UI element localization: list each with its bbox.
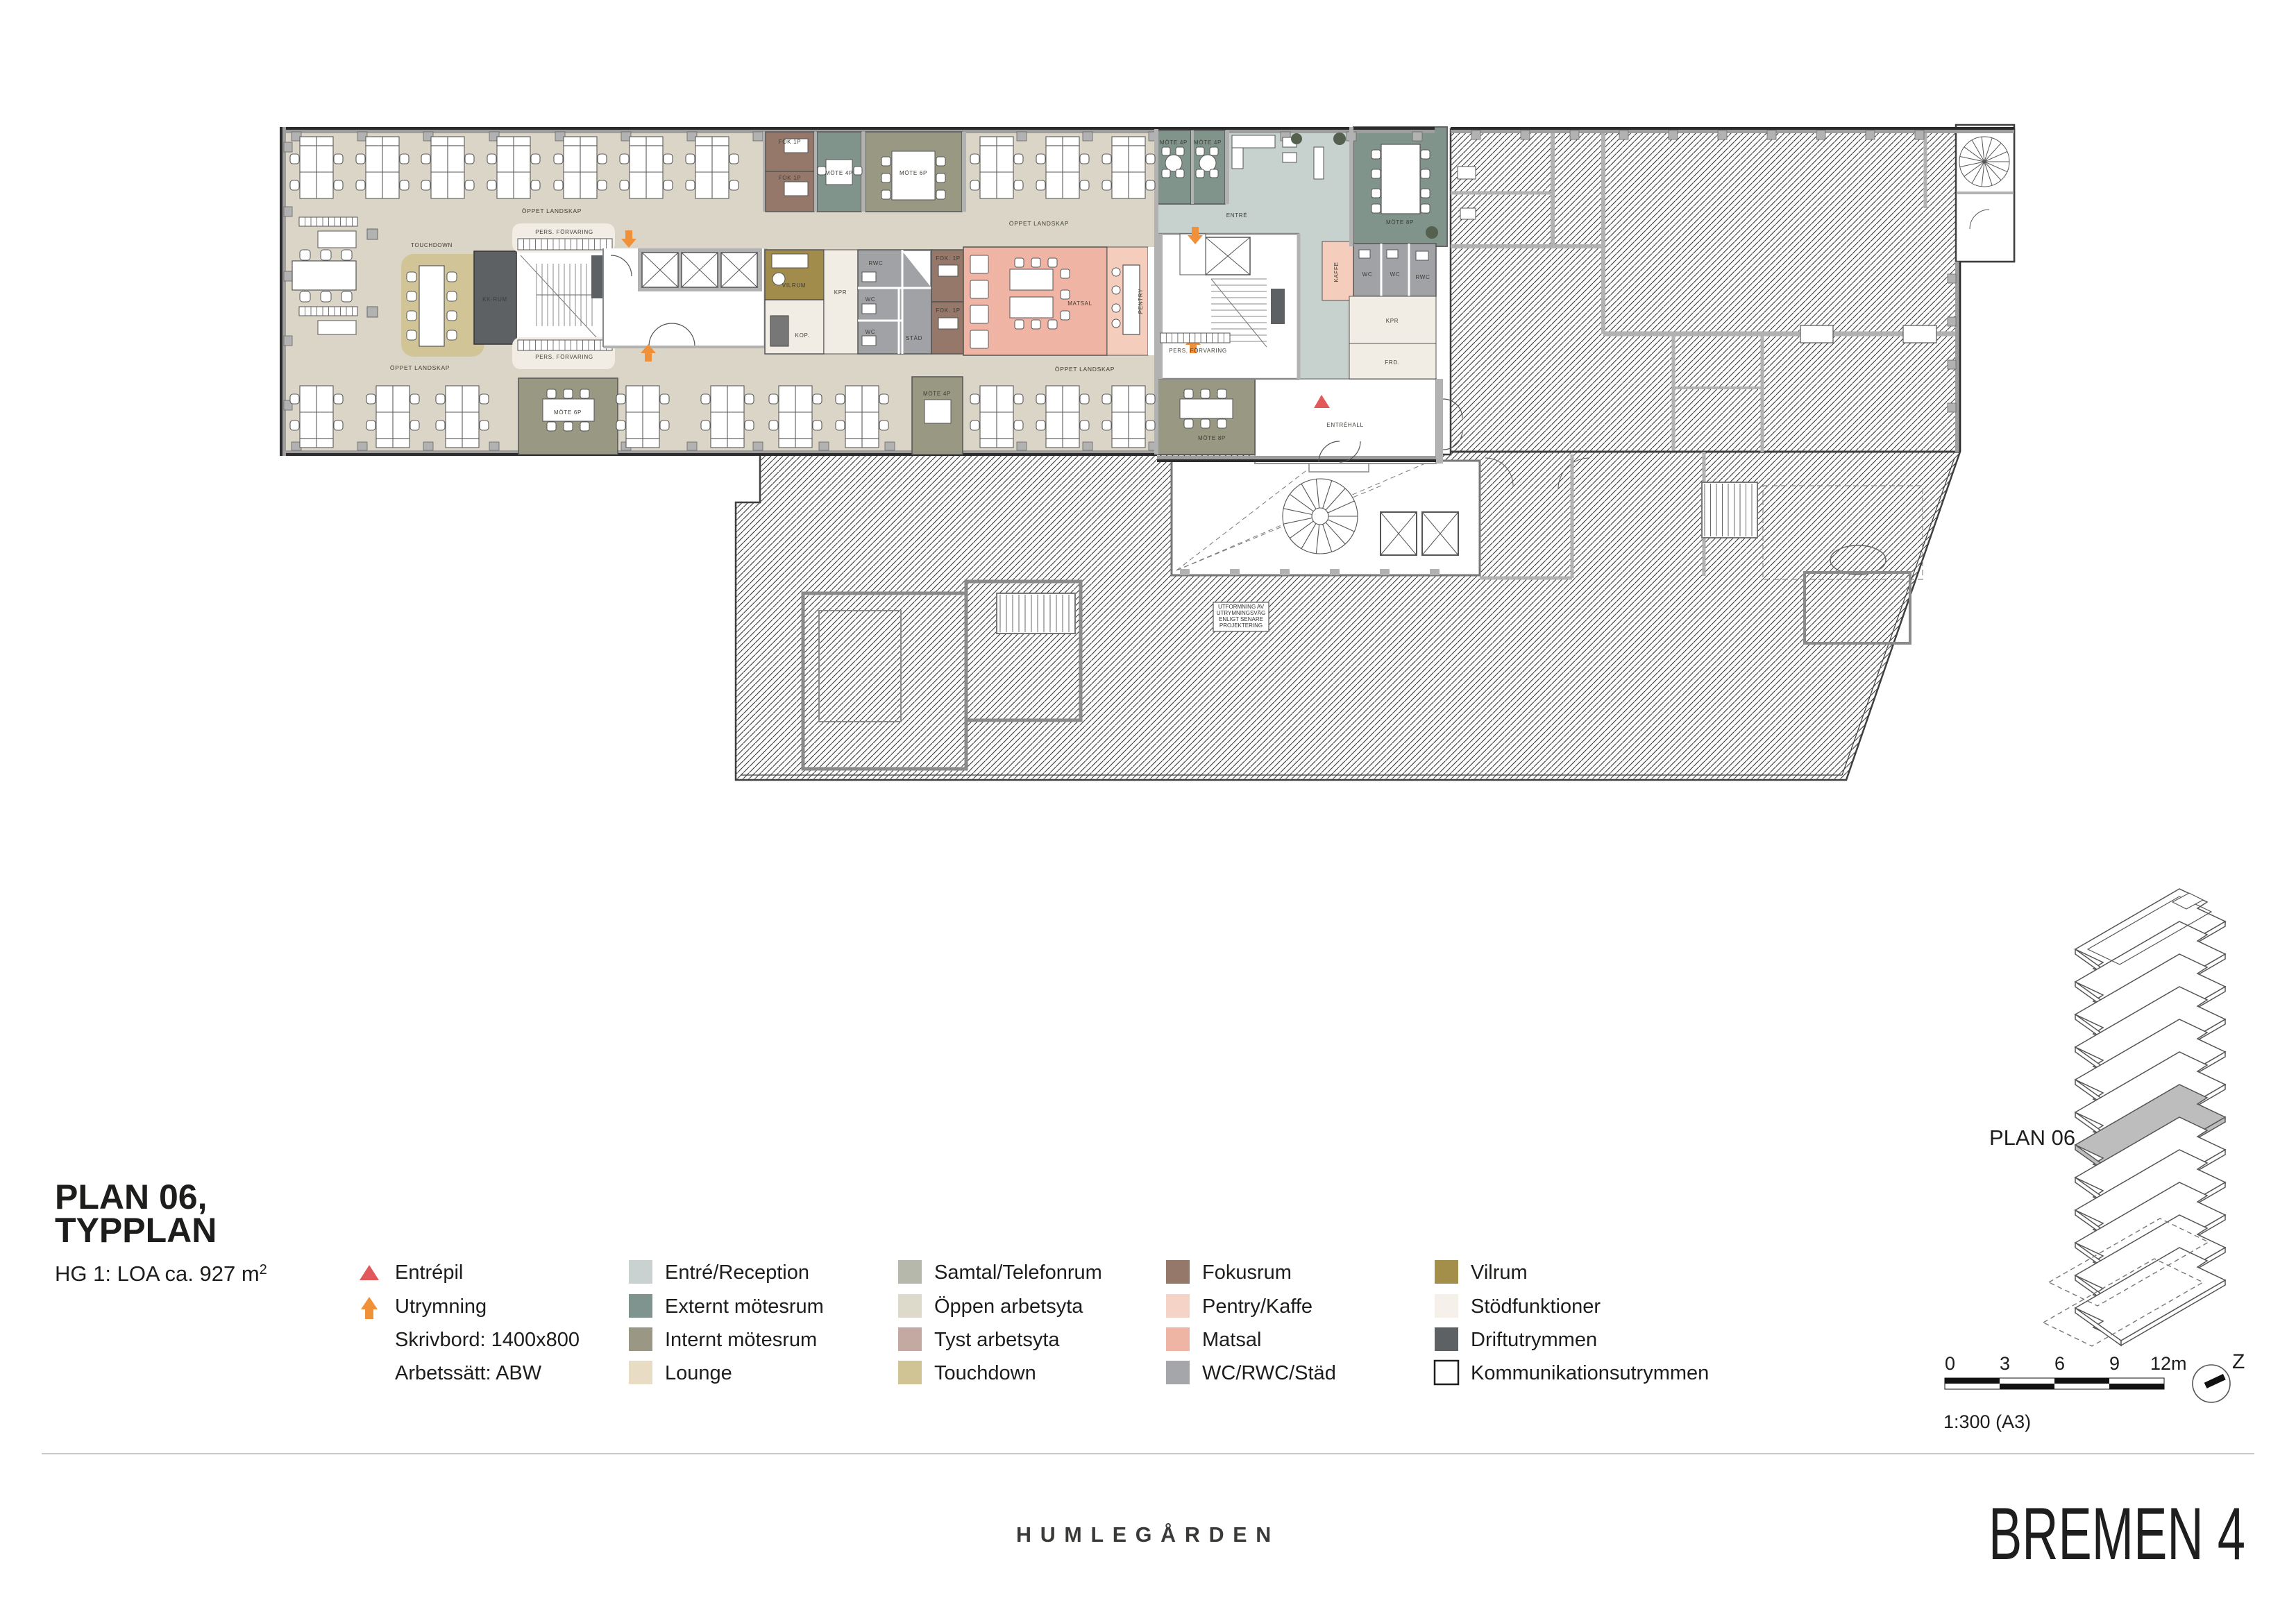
svg-text:3: 3 xyxy=(2000,1353,2010,1374)
svg-text:BREMEN 4: BREMEN 4 xyxy=(1989,1492,2245,1575)
svg-text:MÖTE 8P: MÖTE 8P xyxy=(1198,435,1226,441)
svg-text:KPR: KPR xyxy=(1386,318,1399,324)
svg-text:ENLIGT SENARE: ENLIGT SENARE xyxy=(1219,616,1263,622)
svg-text:RWC: RWC xyxy=(868,260,883,266)
svg-text:MÖTE 4P: MÖTE 4P xyxy=(1194,139,1222,146)
svg-text:MÖTE 6P: MÖTE 6P xyxy=(900,170,927,176)
svg-text:Driftutrymmen: Driftutrymmen xyxy=(1471,1329,1597,1351)
svg-text:Entrépil: Entrépil xyxy=(395,1261,463,1284)
svg-text:9: 9 xyxy=(2109,1353,2120,1374)
svg-text:Tyst arbetsyta: Tyst arbetsyta xyxy=(934,1329,1060,1351)
svg-text:1:300 (A3): 1:300 (A3) xyxy=(1943,1411,2031,1432)
svg-text:Samtal/Telefonrum: Samtal/Telefonrum xyxy=(934,1261,1102,1284)
svg-text:KAFFE: KAFFE xyxy=(1333,262,1340,282)
svg-text:MÖTE 4P: MÖTE 4P xyxy=(1160,139,1188,146)
svg-text:Entré/Reception: Entré/Reception xyxy=(665,1261,809,1284)
svg-text:MÖTE 8P: MÖTE 8P xyxy=(1386,219,1414,226)
svg-text:UTFORMNING AV: UTFORMNING AV xyxy=(1218,604,1265,610)
svg-text:MÖTE 4P: MÖTE 4P xyxy=(825,170,853,176)
svg-text:Touchdown: Touchdown xyxy=(934,1362,1036,1384)
svg-text:Z: Z xyxy=(2232,1350,2245,1373)
svg-text:KK-RUM: KK-RUM xyxy=(482,296,507,303)
svg-text:HUMLEGÅRDEN: HUMLEGÅRDEN xyxy=(1016,1522,1280,1547)
svg-text:TYPPLAN: TYPPLAN xyxy=(55,1211,217,1250)
svg-text:Arbetssätt: ABW: Arbetssätt: ABW xyxy=(395,1362,542,1384)
svg-text:STÄD: STÄD xyxy=(906,335,922,341)
svg-text:MÖTE 4P: MÖTE 4P xyxy=(923,391,951,397)
svg-text:VILRUM: VILRUM xyxy=(782,282,806,289)
svg-text:WC/RWC/Städ: WC/RWC/Städ xyxy=(1202,1362,1336,1384)
svg-text:Matsal: Matsal xyxy=(1202,1329,1261,1351)
svg-text:Stödfunktioner: Stödfunktioner xyxy=(1471,1295,1601,1318)
svg-text:6: 6 xyxy=(2054,1353,2065,1374)
svg-text:HG 1: LOA ca. 927 m2: HG 1: LOA ca. 927 m2 xyxy=(55,1261,267,1286)
svg-text:PERS. FÖRVARING: PERS. FÖRVARING xyxy=(535,354,593,360)
svg-text:PENTRY: PENTRY xyxy=(1138,289,1144,314)
svg-text:FRD.: FRD. xyxy=(1385,359,1399,366)
svg-text:Vilrum: Vilrum xyxy=(1471,1261,1528,1284)
svg-text:ÖPPET LANDSKAP: ÖPPET LANDSKAP xyxy=(1055,366,1115,373)
svg-text:WC: WC xyxy=(866,329,876,335)
svg-text:PROJEKTERING: PROJEKTERING xyxy=(1219,622,1263,629)
svg-text:WC: WC xyxy=(1362,271,1373,278)
svg-text:PLAN 06: PLAN 06 xyxy=(1989,1125,2075,1150)
svg-text:WC: WC xyxy=(1390,271,1401,278)
svg-text:KOP.: KOP. xyxy=(795,332,810,339)
svg-text:Externt mötesrum: Externt mötesrum xyxy=(665,1295,824,1318)
svg-text:FOK. 1P: FOK. 1P xyxy=(936,307,961,314)
svg-text:PERS. FÖRVARING: PERS. FÖRVARING xyxy=(535,229,593,235)
svg-text:FOK 1P: FOK 1P xyxy=(779,175,802,181)
svg-text:0: 0 xyxy=(1945,1353,1955,1374)
svg-text:Kommunikationsutrymmen: Kommunikationsutrymmen xyxy=(1471,1362,1709,1384)
svg-text:Utrymning: Utrymning xyxy=(395,1295,487,1318)
svg-text:12m: 12m xyxy=(2150,1353,2187,1374)
svg-text:Pentry/Kaffe: Pentry/Kaffe xyxy=(1202,1295,1312,1318)
svg-text:KPR: KPR xyxy=(834,289,847,296)
svg-text:ENTRÉ: ENTRÉ xyxy=(1226,212,1248,219)
svg-text:WC: WC xyxy=(866,296,876,303)
svg-text:ENTRÉHALL: ENTRÉHALL xyxy=(1326,422,1363,428)
svg-text:UTRYMNINGSVÄG: UTRYMNINGSVÄG xyxy=(1217,610,1266,616)
svg-text:FOK. 1P: FOK. 1P xyxy=(936,255,961,262)
svg-text:RWC: RWC xyxy=(1415,274,1430,280)
svg-text:Internt mötesrum: Internt mötesrum xyxy=(665,1329,817,1351)
svg-text:MÖTE 6P: MÖTE 6P xyxy=(554,409,582,416)
svg-text:FOK 1P: FOK 1P xyxy=(779,139,802,145)
svg-text:ÖPPET LANDSKAP: ÖPPET LANDSKAP xyxy=(522,207,582,214)
svg-text:Skrivbord: 1400x800: Skrivbord: 1400x800 xyxy=(395,1329,580,1351)
svg-text:Fokusrum: Fokusrum xyxy=(1202,1261,1292,1284)
svg-text:ÖPPET LANDSKAP: ÖPPET LANDSKAP xyxy=(390,364,450,371)
svg-text:TOUCHDOWN: TOUCHDOWN xyxy=(411,242,453,248)
svg-text:Lounge: Lounge xyxy=(665,1362,732,1384)
svg-text:PERS. FÖRVARING: PERS. FÖRVARING xyxy=(1169,348,1227,354)
svg-text:MATSAL: MATSAL xyxy=(1067,300,1092,307)
svg-text:Öppen arbetsyta: Öppen arbetsyta xyxy=(934,1295,1083,1318)
svg-text:ÖPPET LANDSKAP: ÖPPET LANDSKAP xyxy=(1009,220,1069,227)
